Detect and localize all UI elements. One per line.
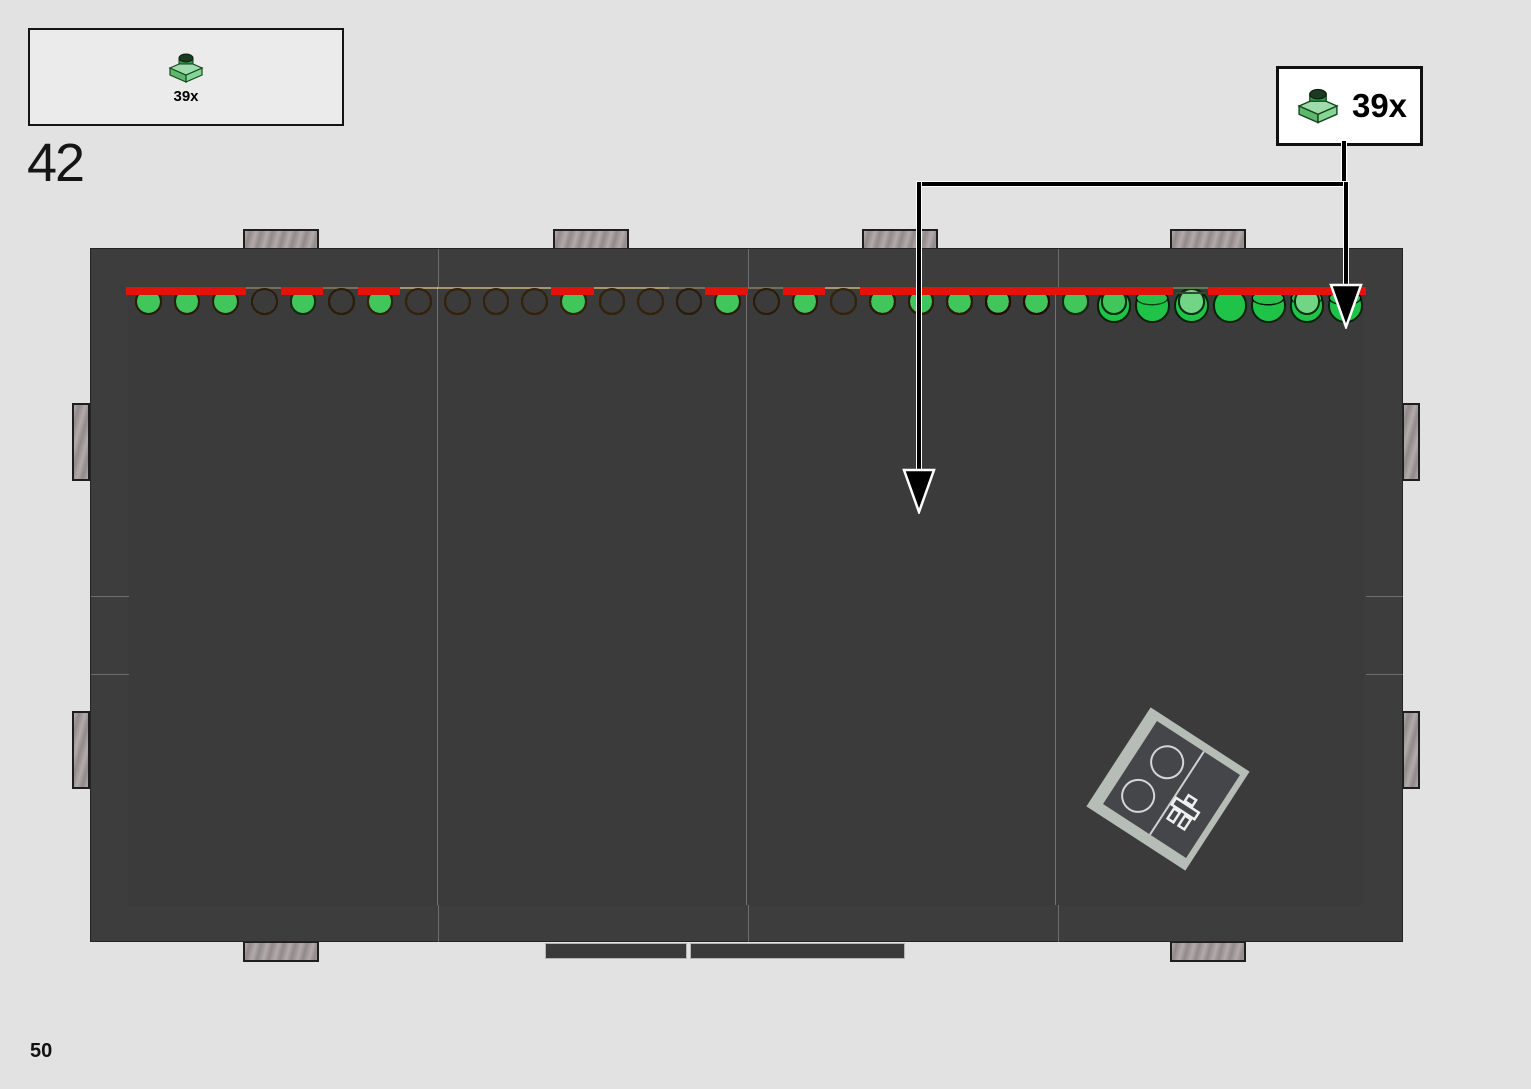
frame-rail — [690, 943, 905, 959]
new-plate-outline — [1014, 287, 1057, 295]
frame-seam — [1058, 905, 1059, 943]
new-plate-outline — [203, 287, 246, 295]
module-seam — [1055, 287, 1056, 905]
new-plate-outline — [281, 287, 324, 295]
frame-clip — [862, 229, 938, 250]
plate-cell — [630, 287, 669, 289]
plate-cell — [592, 287, 631, 289]
new-plate-outline — [551, 287, 594, 295]
frame-seam — [748, 249, 749, 287]
new-plate-outline — [1053, 287, 1096, 295]
frame-seam — [438, 249, 439, 287]
frame-seam — [1366, 596, 1404, 597]
callout-arrow-line — [918, 182, 1347, 186]
frame-seam — [1058, 249, 1059, 287]
frame-clip — [1170, 229, 1246, 250]
new-plate-outline — [1208, 287, 1289, 295]
frame-clip — [243, 941, 319, 962]
module-seam — [746, 287, 747, 905]
frame-rail — [545, 943, 687, 959]
frame-seam — [91, 674, 129, 675]
callout-arrow-line — [917, 182, 921, 472]
new-plate-outline — [1130, 287, 1173, 295]
frame-clip — [553, 229, 629, 250]
plate-cell — [1171, 287, 1210, 289]
frame-seam — [438, 905, 439, 943]
plate-cell — [746, 287, 785, 289]
step-parts-box: 39x — [28, 28, 344, 126]
step-number: 42 — [27, 132, 83, 194]
frame-clip — [1402, 711, 1420, 789]
frame-clip — [72, 403, 90, 481]
quantity-callout: 39x — [1276, 66, 1423, 146]
plate-cell — [669, 287, 708, 289]
plate-cell — [398, 287, 437, 289]
new-plate-outline — [860, 287, 903, 295]
frame-seam — [1366, 674, 1404, 675]
new-plate-outline — [1092, 287, 1135, 295]
arrowhead-icon — [901, 466, 937, 514]
callout-arrow-line — [1342, 141, 1346, 186]
plate-cell — [244, 287, 283, 289]
page-number: 50 — [30, 1040, 52, 1063]
new-plate-outline — [976, 287, 1019, 295]
callout-quantity: 39x — [1352, 87, 1407, 125]
module-seam — [437, 287, 438, 905]
plate-cell — [823, 287, 862, 289]
frame-seam — [748, 905, 749, 943]
new-plate-outline — [126, 287, 169, 295]
printed-tile-icon — [1155, 784, 1210, 839]
plate-cell — [437, 287, 476, 289]
part-quantity: 39x — [173, 88, 198, 105]
frame-seam — [91, 596, 129, 597]
green-plate-icon — [1292, 84, 1344, 128]
plate-cell — [476, 287, 515, 289]
new-plate-outline — [783, 287, 826, 295]
instruction-page: 39x 42 39x 50 — [0, 0, 1531, 1089]
new-plate-outline — [358, 287, 401, 295]
rotated-stud — [1143, 738, 1190, 785]
arrowhead-icon — [1328, 281, 1364, 329]
frame-clip — [243, 229, 319, 250]
frame-clip — [72, 711, 90, 789]
new-plate-outline — [705, 287, 748, 295]
plate-cell — [514, 287, 553, 289]
frame-clip — [1402, 403, 1420, 481]
callout-arrow-line — [1344, 182, 1348, 286]
frame-clip — [1170, 941, 1246, 962]
rotated-stud — [1114, 772, 1161, 819]
green-plate-icon — [164, 50, 208, 86]
plate-cell — [321, 287, 360, 289]
